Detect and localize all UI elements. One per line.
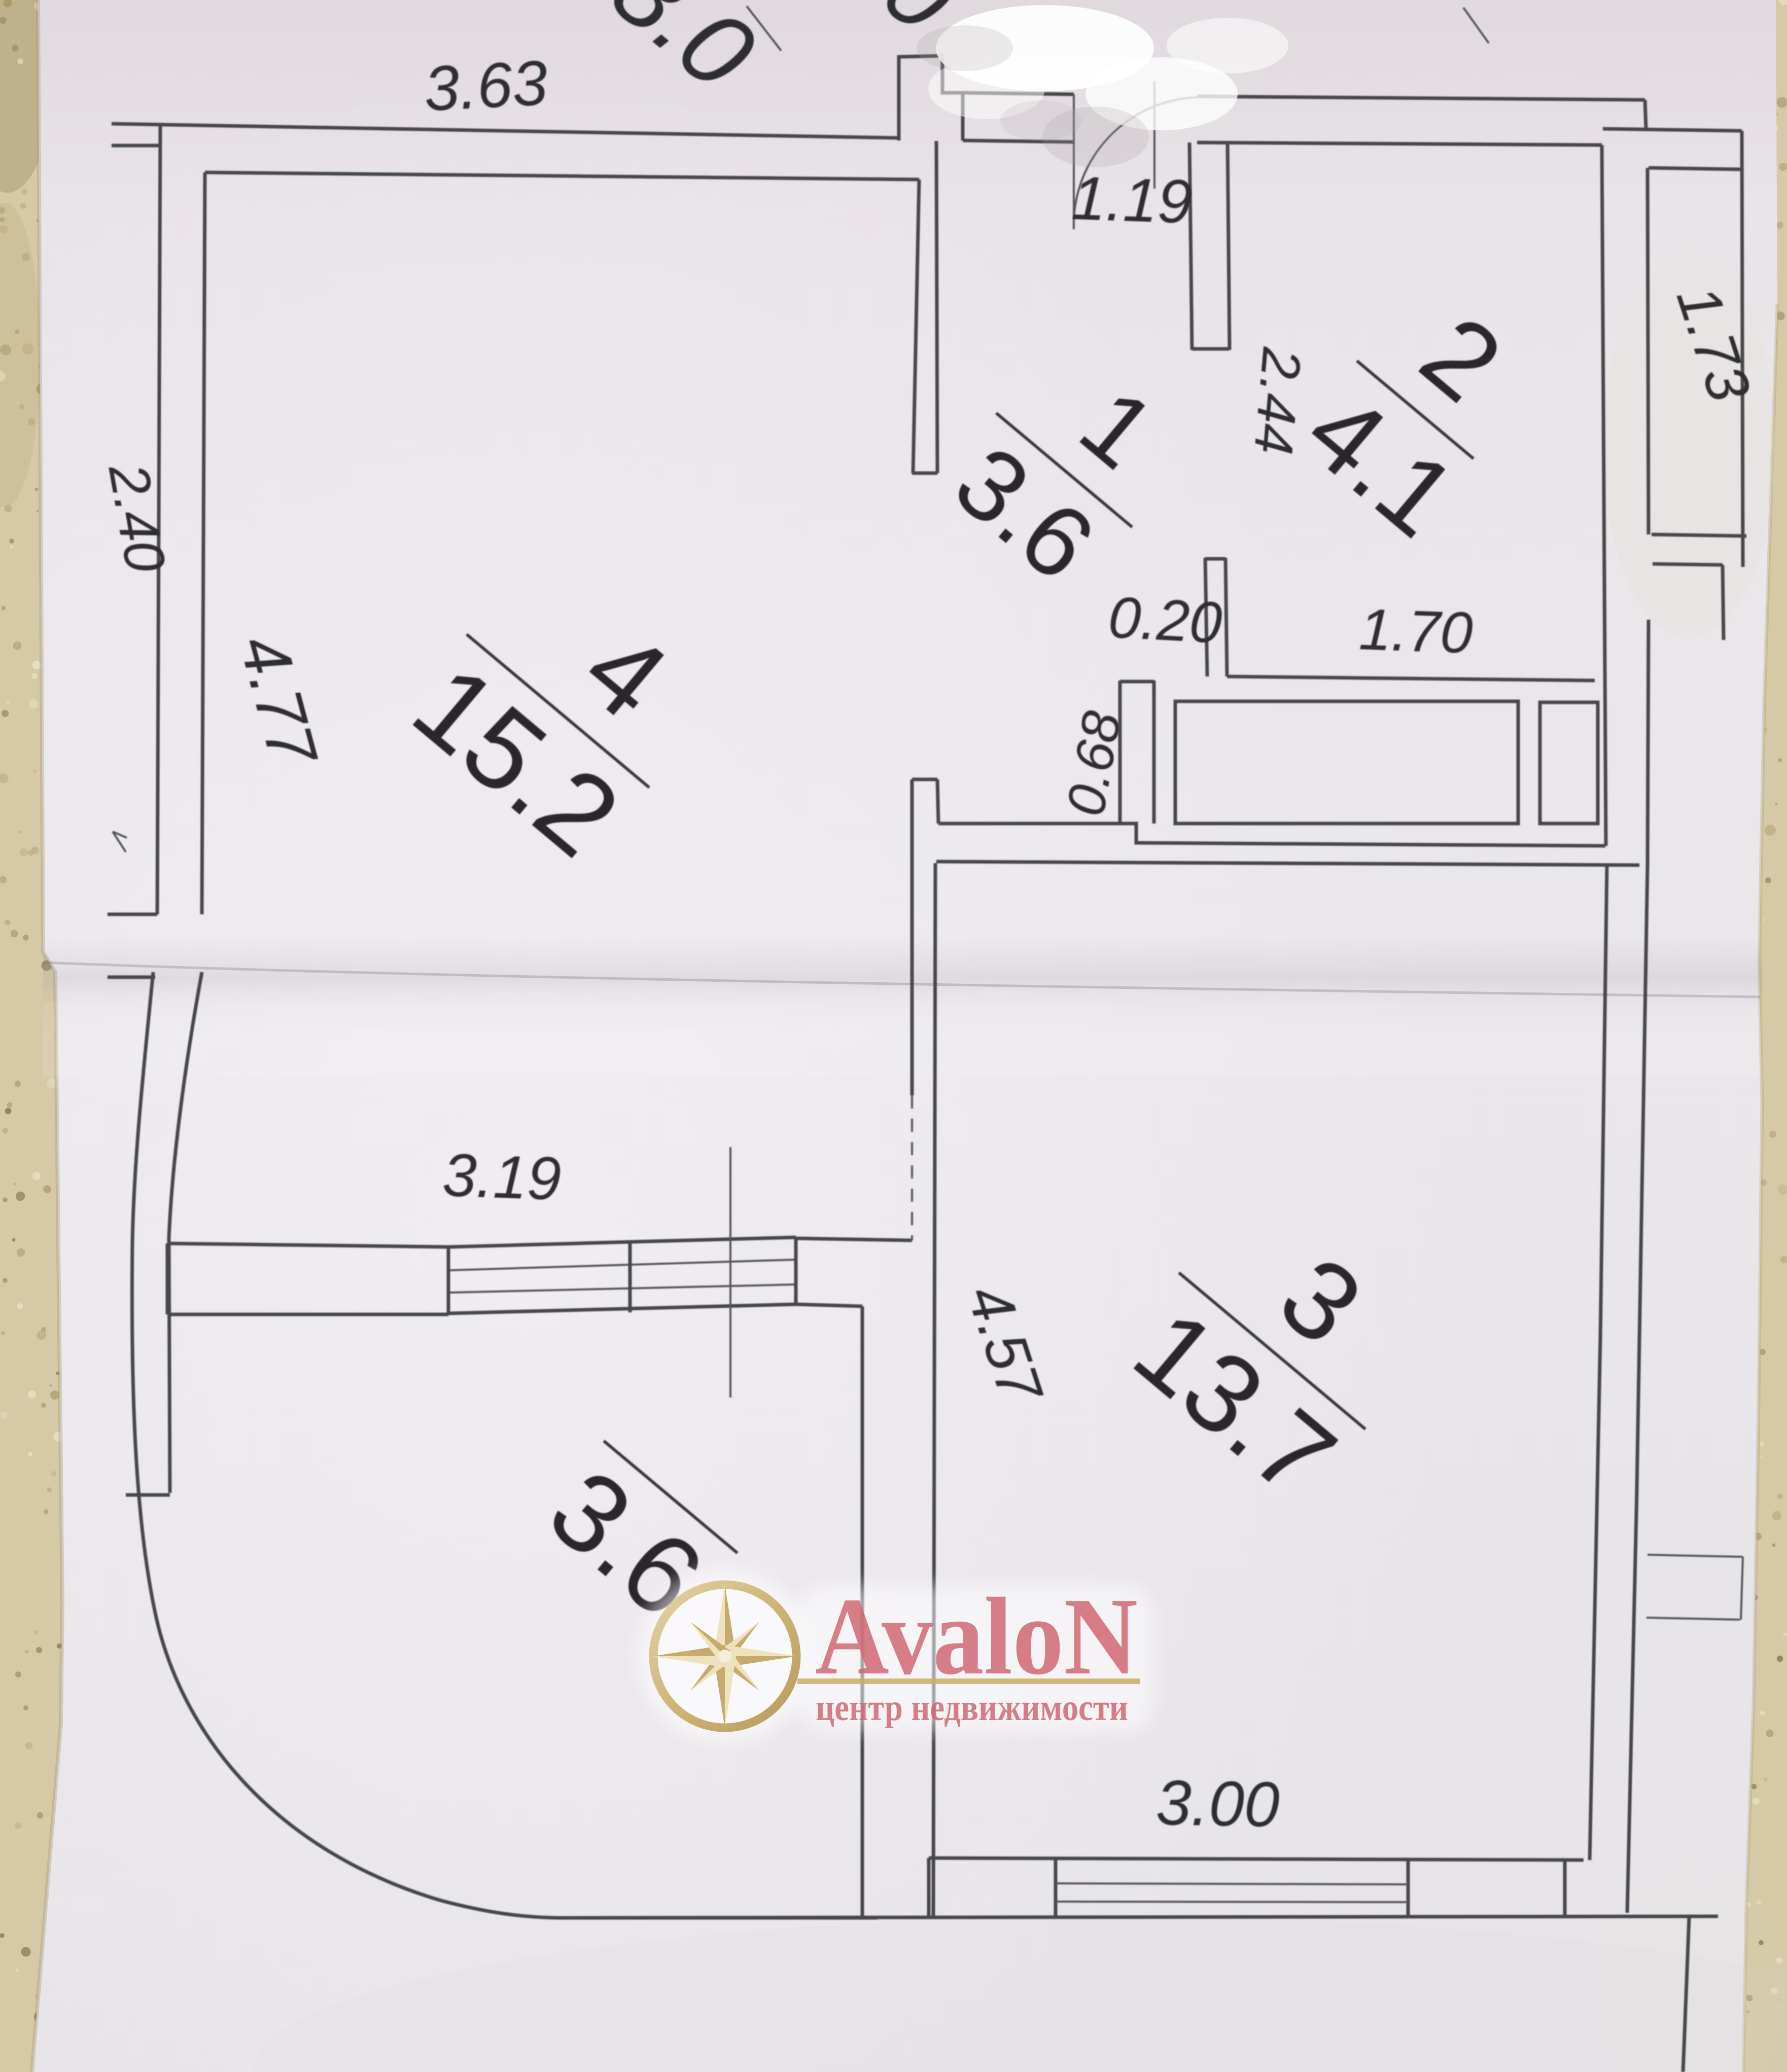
svg-text:1.70: 1.70 <box>1358 597 1474 666</box>
svg-text:3.19: 3.19 <box>441 1141 562 1213</box>
svg-text:3.00: 3.00 <box>1155 1768 1280 1840</box>
svg-text:1.19: 1.19 <box>1070 163 1193 236</box>
svg-text:центр недвижимости: центр недвижимости <box>816 1687 1128 1729</box>
svg-text:AvaloN: AvaloN <box>815 1576 1138 1698</box>
svg-text:3.63: 3.63 <box>423 48 549 125</box>
svg-text:0.20: 0.20 <box>1107 585 1223 656</box>
